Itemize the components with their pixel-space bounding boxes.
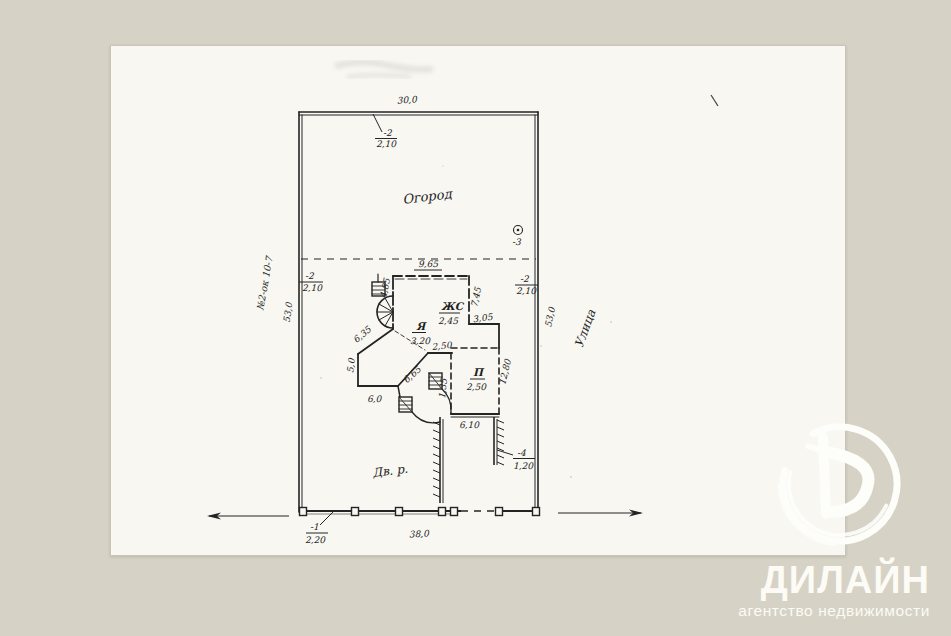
hatched-wall-right <box>494 417 504 465</box>
street-arrow-right <box>558 510 643 517</box>
label-gate-left-size: 2,10 <box>302 283 323 293</box>
label-building-top-width: 9,65 <box>418 259 439 269</box>
label-room-ya: Я <box>416 320 427 332</box>
label-ref-4-size: 1,20 <box>513 461 534 471</box>
label-room-zhs-val: 2,45 <box>438 316 459 326</box>
label-dim-3-05: 3,05 <box>472 312 494 325</box>
label-left-note: №2-ок 10-7 <box>254 254 275 311</box>
label-bottom-width: 38,0 <box>409 528 431 539</box>
ink-bleedthrough <box>335 62 433 77</box>
label-right-depth: 53,0 <box>543 305 557 328</box>
label-room-p: П <box>473 366 485 378</box>
label-dim-7-45: 7,45 <box>469 285 483 308</box>
label-gate-left-ref: -2 <box>305 271 315 281</box>
label-room-p-val: 2,50 <box>466 382 487 392</box>
label-dim-5-0: 5,0 <box>345 357 357 374</box>
label-gate-bottom-size: 2,20 <box>305 535 326 545</box>
brand-tagline: агентство недвижимости <box>738 602 930 620</box>
label-dim-2-50-wall: 2,50 <box>431 340 453 352</box>
street-fence <box>299 508 540 516</box>
brand-logo: ДИЛАЙН агентство недвижимости <box>738 561 930 620</box>
brand-name: ДИЛАЙН <box>738 561 930 599</box>
label-room-zhs: ЖС <box>441 300 465 312</box>
scanned-site-plan-page: 30,0 -2 2,10 Огород -3 9,65 -2 2,10 -2 2… <box>0 0 951 636</box>
survey-point-icon <box>514 226 523 235</box>
label-gate-bottom-ref: -1 <box>310 522 319 532</box>
street-arrow-left <box>207 513 289 520</box>
label-gate-top-size: 2,10 <box>376 139 397 149</box>
paper-speckles <box>320 165 612 477</box>
label-top-width: 30,0 <box>396 94 418 105</box>
label-point-3: -3 <box>512 237 522 247</box>
plan-labels: 30,0 -2 2,10 Огород -3 9,65 -2 2,10 -2 2… <box>254 94 598 545</box>
label-yard: Дв. р. <box>372 462 409 480</box>
hatched-wall-left <box>433 417 443 503</box>
pen-tick <box>711 95 718 106</box>
label-dim-6-0: 6,0 <box>367 394 383 404</box>
label-gate-top-ref: -2 <box>383 128 393 138</box>
label-gate-right-size: 2,10 <box>516 286 537 296</box>
label-gate-right-ref: -2 <box>520 274 530 284</box>
label-garden: Огород <box>402 186 455 207</box>
label-room-ya-val: 3,20 <box>410 336 431 346</box>
label-dim-6-35: 6,35 <box>351 324 374 345</box>
label-dim-6-10: 6,10 <box>459 420 480 430</box>
label-left-depth: 53,0 <box>282 301 295 323</box>
label-dim-6-65: 6,65 <box>401 364 424 386</box>
label-street: Улица <box>572 307 599 349</box>
floor-plan-paper: 30,0 -2 2,10 Огород -3 9,65 -2 2,10 -2 2… <box>110 45 846 556</box>
site-plan-drawing: 30,0 -2 2,10 Огород -3 9,65 -2 2,10 -2 2… <box>111 46 847 557</box>
label-ref-4: -4 <box>517 448 526 458</box>
